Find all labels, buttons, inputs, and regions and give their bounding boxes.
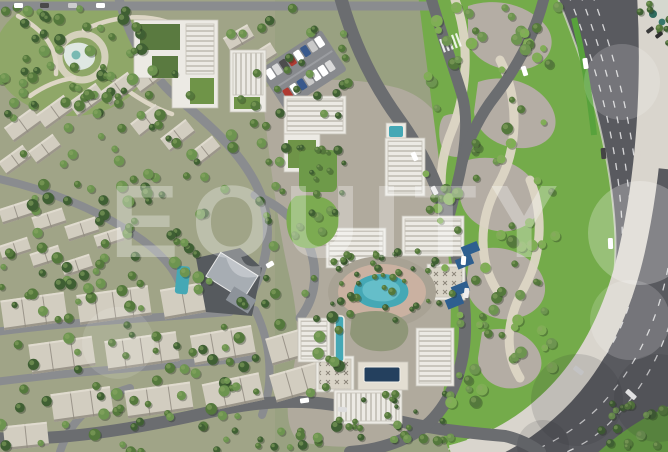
tree-highlight — [277, 110, 281, 114]
tree-highlight — [156, 111, 161, 116]
south-garden — [350, 311, 408, 351]
tree-highlight — [29, 360, 34, 365]
tree-highlight — [542, 345, 545, 348]
tree-highlight — [84, 284, 89, 289]
tree-highlight — [252, 102, 256, 106]
tree-highlight — [465, 377, 469, 381]
tree-highlight — [450, 291, 453, 294]
tree-highlight — [335, 147, 339, 151]
tree-highlight — [15, 341, 19, 345]
tree-highlight — [5, 111, 8, 114]
tree-highlight — [299, 441, 303, 445]
tree-highlight — [115, 157, 120, 162]
tree-highlight — [222, 325, 225, 328]
tree-highlight — [521, 30, 525, 34]
tree-highlight — [199, 346, 203, 350]
tree-highlight — [547, 339, 552, 344]
tree-highlight — [499, 67, 502, 70]
tree-highlight — [427, 299, 429, 301]
tree-highlight — [122, 8, 126, 12]
car — [463, 288, 469, 298]
tree-highlight — [300, 145, 302, 147]
tree-highlight — [440, 419, 443, 422]
tree-highlight — [229, 143, 234, 148]
tree-highlight — [43, 397, 48, 402]
tree-highlight — [541, 120, 544, 123]
tree-highlight — [194, 159, 197, 162]
tree-highlight — [98, 25, 101, 28]
tree-highlight — [137, 45, 142, 50]
tree-highlight — [1, 74, 5, 78]
tree-highlight — [40, 270, 43, 273]
tree-highlight — [258, 437, 261, 440]
tree-highlight — [77, 6, 80, 9]
tree-highlight — [467, 39, 472, 44]
tree-highlight — [2, 441, 7, 446]
tree-highlight — [6, 249, 10, 253]
tree-highlight — [328, 313, 333, 318]
tree-highlight — [96, 218, 100, 222]
tree-highlight — [389, 288, 392, 291]
tree-highlight — [56, 46, 60, 50]
tree-highlight — [112, 146, 115, 149]
tree-highlight — [403, 279, 405, 281]
tree-highlight — [69, 151, 74, 156]
tree-highlight — [664, 27, 667, 30]
tree-highlight — [339, 46, 342, 49]
tree-highlight — [238, 298, 243, 303]
tree-highlight — [345, 79, 349, 83]
tree-highlight — [385, 413, 388, 416]
tree-highlight — [471, 365, 476, 370]
tree-highlight — [223, 345, 226, 348]
tree-highlight — [187, 92, 191, 96]
tree-highlight — [521, 45, 526, 50]
tree-highlight — [276, 158, 280, 162]
tree-highlight — [498, 156, 502, 160]
tree-highlight — [447, 392, 451, 396]
tree-highlight — [39, 180, 44, 185]
tree-highlight — [458, 313, 461, 316]
tree-highlight — [39, 307, 44, 312]
tree-highlight — [155, 122, 159, 126]
tree-highlight — [107, 88, 111, 92]
tree-highlight — [120, 442, 123, 445]
tree-highlight — [512, 354, 516, 358]
tree-highlight — [65, 334, 70, 339]
tree-highlight — [383, 305, 386, 308]
tree-highlight — [541, 308, 544, 311]
tree-highlight — [414, 303, 417, 306]
tree-highlight — [258, 139, 262, 143]
tree-highlight — [88, 186, 92, 190]
tree-highlight — [67, 280, 72, 285]
tree-highlight — [56, 35, 61, 40]
tree-highlight — [538, 326, 542, 330]
tree-highlight — [434, 437, 438, 441]
tree-highlight — [173, 139, 178, 144]
tree-highlight — [41, 31, 45, 35]
tree-highlight — [509, 14, 512, 17]
tree-highlight — [62, 99, 67, 104]
tree-highlight — [32, 36, 36, 40]
tree-highlight — [331, 302, 333, 304]
tree-highlight — [394, 422, 398, 426]
tree-highlight — [109, 34, 112, 37]
tree-highlight — [34, 68, 37, 71]
tree-highlight — [527, 41, 531, 45]
tree-highlight — [238, 96, 241, 99]
tree-highlight — [235, 414, 238, 417]
tree-highlight — [518, 106, 522, 110]
tree-highlight — [271, 444, 275, 448]
tree-highlight — [307, 389, 311, 393]
tree-highlight — [314, 316, 317, 319]
tree-highlight — [289, 5, 293, 9]
tree-highlight — [16, 404, 20, 408]
tree-highlight — [208, 355, 213, 360]
building-b — [230, 50, 266, 112]
tree-highlight — [395, 405, 397, 407]
tree-highlight — [447, 398, 452, 403]
tree-highlight — [251, 120, 255, 124]
aerial-masterplan-image: EQUITY — [0, 0, 668, 452]
tree-highlight — [90, 430, 95, 435]
tree-highlight — [443, 37, 448, 42]
tree-highlight — [94, 110, 98, 114]
tree-highlight — [38, 441, 41, 444]
tree-highlight — [137, 281, 140, 284]
tree-highlight — [253, 355, 257, 359]
tree-highlight — [271, 290, 276, 295]
tree-highlight — [404, 435, 408, 439]
tree-highlight — [254, 389, 257, 392]
tree-highlight — [224, 437, 227, 440]
tree-highlight — [100, 410, 105, 415]
tree-highlight — [227, 30, 231, 34]
tree-highlight — [341, 31, 344, 34]
tree-highlight — [358, 426, 361, 429]
car — [40, 3, 49, 8]
tree-highlight — [227, 359, 231, 363]
tree-highlight — [190, 349, 194, 353]
tree-highlight — [648, 7, 651, 10]
tree-highlight — [315, 332, 320, 337]
tree-highlight — [22, 68, 26, 72]
tree-highlight — [457, 320, 461, 324]
tree-highlight — [121, 88, 124, 91]
tree-highlight — [75, 102, 80, 107]
tree-highlight — [338, 298, 342, 302]
tree-highlight — [625, 444, 628, 447]
tree-highlight — [115, 94, 118, 97]
tree-highlight — [286, 55, 290, 59]
tree-highlight — [32, 196, 35, 199]
tree-highlight — [127, 50, 130, 53]
tree-highlight — [130, 397, 134, 401]
tree-highlight — [233, 383, 237, 387]
tree-highlight — [353, 419, 356, 422]
tree-highlight — [20, 89, 24, 93]
tree-highlight — [232, 428, 235, 431]
tree-highlight — [102, 240, 106, 244]
car — [68, 3, 77, 8]
tree-highlight — [86, 47, 91, 52]
tree-highlight — [118, 125, 122, 129]
tree-highlight — [314, 434, 318, 438]
tree-highlight — [342, 161, 344, 163]
tree-highlight — [554, 3, 559, 8]
tree-highlight — [98, 71, 103, 76]
rooftop-lap-pool — [364, 367, 400, 382]
tree-highlight — [132, 48, 135, 51]
tree-highlight — [24, 7, 29, 12]
tree-highlight — [326, 150, 328, 152]
tree-highlight — [607, 440, 611, 444]
tree-highlight — [294, 87, 297, 90]
tree-highlight — [337, 417, 340, 420]
tree-highlight — [276, 320, 281, 325]
tree-highlight — [434, 106, 437, 109]
tree-highlight — [436, 27, 439, 30]
tree-highlight — [1, 265, 4, 268]
tree-highlight — [61, 161, 64, 164]
tree-highlight — [330, 358, 335, 363]
tree-highlight — [101, 255, 105, 259]
tree-highlight — [63, 422, 66, 425]
tree-highlight — [139, 306, 142, 309]
tree-highlight — [357, 281, 359, 283]
tree-highlight — [348, 293, 351, 296]
tree-highlight — [146, 402, 149, 405]
tree-highlight — [297, 146, 299, 148]
tree-highlight — [449, 59, 454, 64]
tree-highlight — [637, 9, 640, 12]
tree-highlight — [382, 286, 384, 288]
tree-highlight — [117, 405, 120, 408]
tree-highlight — [263, 123, 267, 127]
tree-highlight — [178, 392, 182, 396]
tree-highlight — [336, 113, 339, 116]
tree-highlight — [70, 84, 74, 88]
tree-highlight — [119, 15, 124, 20]
tree-highlight — [647, 2, 650, 5]
tree-highlight — [10, 99, 15, 104]
tree-highlight — [493, 293, 498, 298]
tree-highlight — [188, 150, 193, 155]
tree-highlight — [125, 302, 130, 307]
watermark-circle — [590, 280, 668, 360]
tree-highlight — [534, 279, 537, 282]
tree-highlight — [97, 280, 102, 285]
tree-highlight — [38, 244, 43, 249]
tree-highlight — [284, 67, 287, 70]
tree-highlight — [137, 419, 141, 423]
tree-highlight — [37, 10, 40, 13]
tree-highlight — [512, 35, 517, 40]
tree-highlight — [214, 447, 217, 450]
tree-highlight — [100, 211, 105, 216]
tree-highlight — [478, 33, 482, 37]
tree-highlight — [258, 25, 262, 29]
tree-highlight — [166, 364, 171, 369]
tree-highlight — [63, 263, 68, 268]
tree-highlight — [480, 314, 483, 317]
tree-highlight — [207, 279, 210, 282]
tree-highlight — [425, 73, 429, 77]
tree-highlight — [472, 140, 476, 144]
tree-highlight — [115, 100, 119, 104]
tree-highlight — [103, 93, 108, 98]
tree-highlight — [133, 23, 137, 27]
tree-highlight — [654, 442, 658, 446]
tree-highlight — [242, 302, 245, 305]
tree-highlight — [28, 290, 33, 295]
tree-highlight — [503, 124, 508, 129]
tree-highlight — [220, 387, 225, 392]
tree-highlight — [150, 125, 153, 128]
pond-water — [72, 51, 81, 60]
tree-highlight — [282, 144, 286, 148]
tree-highlight — [347, 311, 350, 314]
building-i-pool-deck — [358, 362, 408, 390]
rooftop-pool — [389, 126, 403, 137]
tree-highlight — [477, 322, 480, 325]
tree-highlight — [2, 8, 6, 12]
tree-highlight — [44, 194, 49, 199]
tree-highlight — [101, 65, 104, 68]
tree-highlight — [12, 303, 15, 306]
tree-highlight — [493, 159, 496, 162]
tree-highlight — [53, 254, 58, 259]
tree-highlight — [23, 56, 26, 59]
tree-highlight — [76, 86, 79, 89]
tree-highlight — [48, 63, 52, 67]
tree-highlight — [118, 286, 123, 291]
tree-highlight — [55, 317, 58, 320]
tree-highlight — [512, 324, 515, 327]
tree-highlight — [28, 74, 33, 79]
tree-highlight — [28, 200, 33, 205]
tree-highlight — [516, 291, 521, 296]
tree-highlight — [657, 25, 660, 28]
tree-highlight — [323, 384, 327, 388]
tree-highlight — [321, 111, 325, 115]
tree-highlight — [266, 17, 270, 21]
tree-highlight — [443, 391, 446, 394]
tree-highlight — [502, 5, 505, 8]
tree-highlight — [332, 422, 337, 427]
tree-highlight — [20, 80, 24, 84]
tree-highlight — [477, 385, 482, 390]
tree-highlight — [498, 288, 502, 292]
tree-highlight — [533, 24, 537, 28]
tree-highlight — [207, 404, 212, 409]
tree-highlight — [625, 440, 629, 444]
tree-highlight — [541, 46, 544, 49]
tree-highlight — [312, 26, 315, 29]
tree-highlight — [65, 124, 69, 128]
tree-highlight — [514, 316, 519, 321]
car — [96, 3, 105, 8]
tree-highlight — [128, 75, 133, 80]
tree-highlight — [336, 327, 340, 331]
tree-highlight — [473, 28, 476, 31]
tree-highlight — [499, 333, 502, 336]
tree-highlight — [262, 301, 266, 305]
tree-highlight — [100, 196, 104, 200]
tree-highlight — [346, 424, 349, 427]
tree-highlight — [34, 229, 39, 234]
tree-highlight — [299, 60, 302, 63]
tree-highlight — [455, 57, 458, 60]
tree-highlight — [407, 425, 410, 428]
tree-highlight — [93, 383, 97, 387]
tree-highlight — [75, 350, 78, 353]
tree-highlight — [181, 365, 185, 369]
tree-highlight — [457, 373, 460, 376]
tree-highlight — [146, 92, 150, 96]
watermark-text: EQUITY — [110, 164, 571, 279]
tree-highlight — [65, 315, 69, 319]
car — [338, 407, 347, 413]
tree-highlight — [485, 330, 489, 334]
tree-highlight — [44, 16, 48, 20]
tree-highlight — [21, 20, 25, 24]
tree-highlight — [410, 307, 412, 309]
tree-highlight — [56, 280, 61, 285]
tree-highlight — [392, 391, 396, 395]
tree-highlight — [315, 147, 318, 150]
tree-highlight — [437, 301, 440, 304]
tree-highlight — [149, 67, 154, 72]
tree-highlight — [452, 3, 457, 8]
tree-highlight — [93, 269, 96, 272]
tree-highlight — [165, 411, 168, 414]
tree-highlight — [80, 271, 85, 276]
tree-highlight — [199, 424, 202, 427]
tree-highlight — [420, 435, 424, 439]
tree-highlight — [75, 182, 78, 185]
tree-highlight — [266, 159, 269, 162]
tree-highlight — [240, 362, 245, 367]
tree-highlight — [256, 443, 259, 446]
tree-highlight — [166, 136, 169, 139]
tree-highlight — [358, 435, 361, 438]
tree-highlight — [167, 414, 171, 418]
tree-highlight — [153, 377, 157, 381]
tree-highlight — [392, 437, 395, 440]
tree-highlight — [20, 386, 24, 390]
tree-highlight — [83, 23, 87, 27]
tree-highlight — [107, 73, 111, 77]
tree-highlight — [302, 291, 305, 294]
tree-highlight — [447, 434, 451, 438]
tree-highlight — [99, 134, 102, 137]
tree-highlight — [240, 31, 244, 35]
tree-highlight — [275, 86, 278, 89]
tree-highlight — [76, 299, 79, 302]
tree-highlight — [21, 151, 24, 154]
car — [601, 148, 607, 159]
tree-highlight — [362, 398, 364, 400]
tree-highlight — [432, 17, 437, 22]
tree-highlight — [340, 282, 342, 284]
tree-highlight — [55, 15, 60, 20]
tree-highlight — [84, 91, 89, 96]
tree-highlight — [174, 343, 177, 346]
car — [14, 3, 23, 8]
